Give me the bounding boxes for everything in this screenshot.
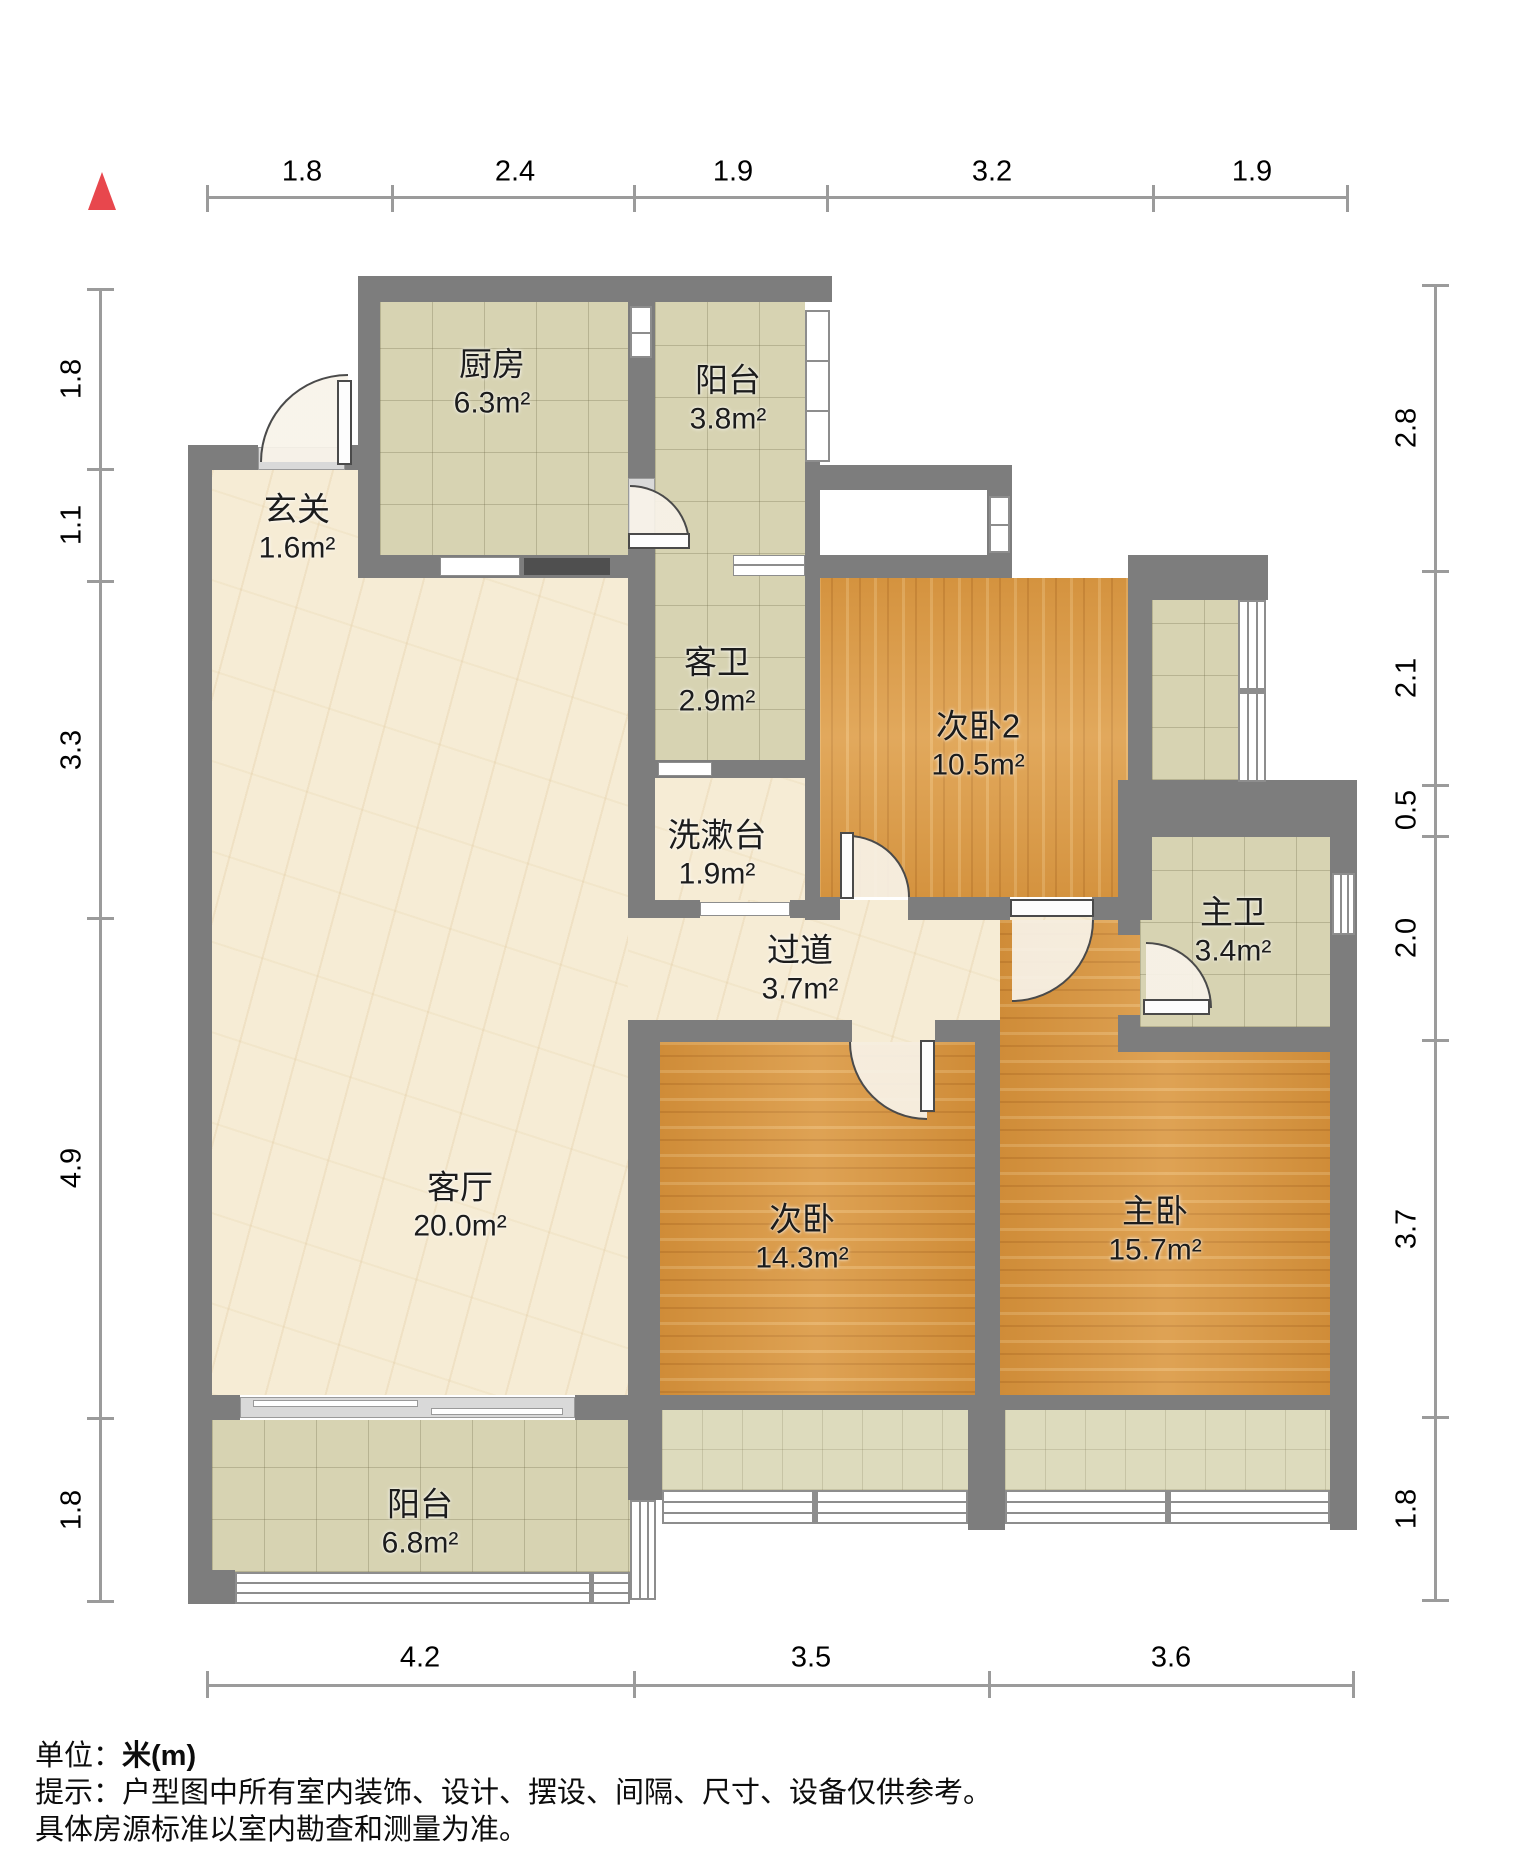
wall-bay-inner-master: [1005, 1395, 1330, 1410]
entry-door-arc-icon: [260, 374, 348, 462]
opening-vanity-hall: [700, 902, 790, 916]
dim-bottom-2: 3.5: [791, 1642, 831, 1675]
wall-bedroom-master-divider: [975, 1020, 1000, 1408]
dim-left-1: 1.8: [56, 359, 89, 399]
room-label-guest-bath: 客卫 2.9m²: [679, 642, 756, 721]
window-balcony-bottom-icon: [235, 1572, 630, 1604]
dim-top-3: 1.9: [713, 156, 753, 189]
floor-utility-nook: [1152, 600, 1238, 780]
masterbath-door-leaf-icon: [1143, 999, 1210, 1015]
wall-dining-bath-divider: [628, 545, 655, 918]
wall-hall-top-b: [908, 897, 1010, 920]
bedroom-door-leaf-icon: [920, 1040, 935, 1112]
dim-right-2: 2.1: [1391, 658, 1424, 698]
window-sill-balcony-bath: [733, 555, 805, 576]
floor-living-dining: [212, 470, 628, 1395]
wall-hall-top-a: [805, 897, 840, 920]
dim-top-1: 1.8: [282, 156, 322, 189]
room-label-vanity: 洗漱台 1.9m²: [668, 815, 767, 894]
wall-bay-stub-left: [628, 1395, 662, 1500]
dim-line-right: [1434, 285, 1437, 1601]
room-label-balcony-bottom: 阳台 6.8m²: [382, 1484, 459, 1563]
dim-top-4: 3.2: [972, 156, 1012, 189]
dim-right-3: 0.5: [1391, 790, 1424, 830]
north-triangle-icon: [88, 172, 116, 210]
dim-right-1: 2.8: [1391, 408, 1424, 448]
dim-line-bottom: [207, 1684, 1354, 1687]
wall-living-bottom-a: [212, 1395, 240, 1420]
room-label-bedroom2: 次卧2 10.5m²: [931, 706, 1024, 785]
room-label-kitchen: 厨房 6.3m²: [454, 344, 531, 423]
wall-step-topright: [820, 465, 1012, 490]
window-balcony-top-icon: [805, 310, 830, 462]
room-label-master-bedroom: 主卧 15.7m²: [1108, 1191, 1201, 1270]
window-bay-master-icon: [1005, 1490, 1330, 1524]
wall-left-outer: [188, 445, 212, 1604]
wall-entry-stub-left: [212, 445, 258, 470]
dim-bottom-1: 4.2: [400, 1642, 440, 1675]
floor-plan-canvas: 厨房 6.3m² 阳台 3.8m² 玄关 1.6m² 客卫 2.9m² 次卧2 …: [0, 0, 1537, 1872]
threshold-living-balcony: [240, 1397, 575, 1418]
wall-masterbath-left-top: [1118, 837, 1140, 935]
opening-kitchen: [440, 557, 520, 576]
wall-top-outer: [358, 276, 832, 302]
counter-kitchen-pass: [524, 558, 610, 575]
dim-right-5: 3.7: [1391, 1209, 1424, 1249]
room-label-master-bath: 主卫 3.4m²: [1195, 892, 1272, 971]
wall-bedroom-left: [628, 1042, 660, 1395]
dim-line-top: [207, 196, 1348, 199]
window-corner-icon: [989, 496, 1010, 553]
footer-unit: 单位：米(m): [35, 1732, 196, 1774]
bay-sill-bedroom: [662, 1408, 968, 1490]
wall-vanity-bottom-b: [790, 900, 805, 918]
wall-bay-stub-mid: [968, 1395, 1005, 1530]
wall-balcony-corner: [188, 1570, 235, 1604]
wall-bedroom2-top: [820, 555, 1012, 578]
window-masterbath-icon: [1332, 873, 1355, 935]
room-label-bedroom: 次卧 14.3m²: [755, 1199, 848, 1278]
master-door-leaf-icon: [1010, 899, 1094, 917]
floor-kitchen: [380, 302, 628, 557]
wall-nook-bottom: [1118, 780, 1357, 837]
dim-top-2: 2.4: [495, 156, 535, 189]
wall-hall-bottom-a: [628, 1020, 852, 1042]
bay-sill-master: [1005, 1408, 1330, 1490]
wall-bay-inner-bedroom: [662, 1395, 968, 1410]
window-nook-icon: [1238, 600, 1266, 782]
wall-bedroom2-left: [805, 462, 820, 920]
room-label-hallway: 过道 3.7m²: [762, 930, 839, 1009]
window-bay-bedroom-icon: [662, 1490, 968, 1524]
bedroom2-door-leaf-icon: [840, 832, 854, 899]
opening-bath-door: [658, 762, 712, 776]
room-label-balcony-top: 阳台 3.8m²: [690, 360, 767, 439]
dim-right-6: 1.8: [1391, 1489, 1424, 1529]
dim-bottom-3: 3.6: [1151, 1642, 1191, 1675]
balcony-door-leaf-icon: [628, 533, 690, 549]
dim-right-4: 2.0: [1391, 918, 1424, 958]
dim-left-4: 4.9: [56, 1148, 89, 1188]
entry-door-leaf-icon: [337, 380, 352, 465]
wall-hall-top-c: [1092, 897, 1140, 920]
window-balcony-right-icon: [630, 1500, 656, 1600]
dim-left-2: 1.1: [56, 505, 89, 545]
wall-living-bottom-b: [575, 1395, 628, 1420]
footer-note-line1: 提示：户型图中所有室内装饰、设计、摆设、间隔、尺寸、设备仅供参考。: [35, 1769, 992, 1811]
wall-vanity-bottom-a: [655, 900, 700, 918]
room-label-foyer: 玄关 1.6m²: [259, 489, 336, 568]
window-kitchen-divider-icon: [630, 306, 652, 358]
wall-masterbath-bottom: [1118, 1027, 1357, 1052]
dim-left-3: 3.3: [56, 730, 89, 770]
wall-right-outer: [1330, 837, 1357, 1530]
room-label-living: 客厅 20.0m²: [413, 1167, 506, 1246]
footer-note-line2: 具体房源标准以室内勘查和测量为准。: [35, 1806, 528, 1848]
dim-line-left: [99, 289, 102, 1602]
dim-left-5: 1.8: [56, 1490, 89, 1530]
wall-kitchen-left: [358, 302, 380, 578]
dim-top-5: 1.9: [1232, 156, 1272, 189]
